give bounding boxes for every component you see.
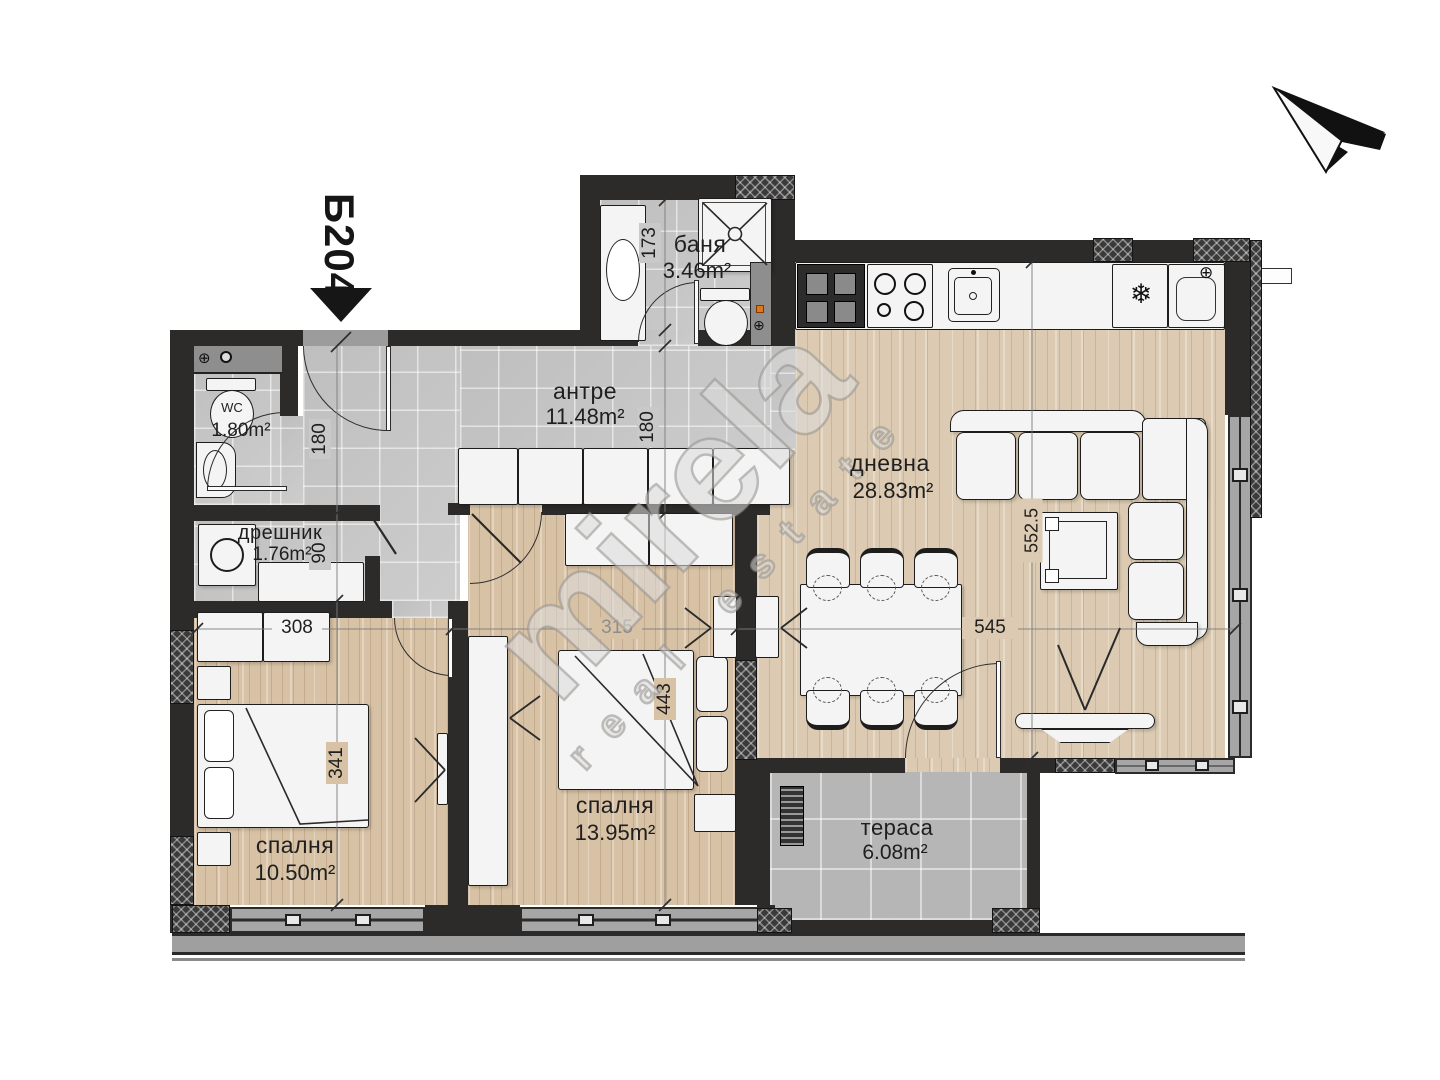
bedroom1-label: спалня	[200, 832, 390, 859]
bedroom1-area: 10.50m²	[200, 860, 390, 886]
closet-door-leaf	[370, 514, 396, 554]
dim-living-width: 545	[962, 617, 1018, 639]
bed-fold-line	[246, 708, 368, 824]
north-arrow-icon	[1268, 72, 1390, 180]
bathroom-label: баня	[610, 231, 790, 258]
bedroom2-label: спалня	[520, 792, 710, 819]
terrace-area: 6.08m²	[800, 841, 990, 865]
hallway-area: 11.48m²	[485, 404, 685, 430]
entrance-arrow-icon	[310, 288, 372, 322]
bedroom2-area: 13.95m²	[520, 820, 710, 846]
terrace-label: тераса	[802, 815, 992, 841]
wc-fixture-label: WC	[210, 400, 254, 415]
floor-plan-canvas: ❄ ⊕ ⊕ ⊕	[0, 0, 1440, 1080]
dim-bedroom1-height: 341	[326, 742, 348, 784]
tv-direction-icon	[781, 608, 807, 648]
tv-direction-icon	[1058, 628, 1120, 710]
closet-area: 1.76m²	[222, 544, 342, 566]
dim-living-height: 552.5	[1022, 499, 1043, 563]
living-label: дневна	[795, 450, 985, 477]
hallway-label: антре	[485, 378, 685, 405]
wc-area: 1.80m²	[196, 420, 286, 442]
closet-label: дрешник	[215, 522, 345, 545]
dim-bedroom1-width: 308	[272, 617, 322, 639]
bathroom-area: 3.46m²	[607, 258, 787, 284]
living-area: 28.83m²	[798, 478, 988, 504]
dim-hallway-left-height: 180	[309, 419, 331, 459]
unit-label: Б204	[317, 185, 363, 305]
